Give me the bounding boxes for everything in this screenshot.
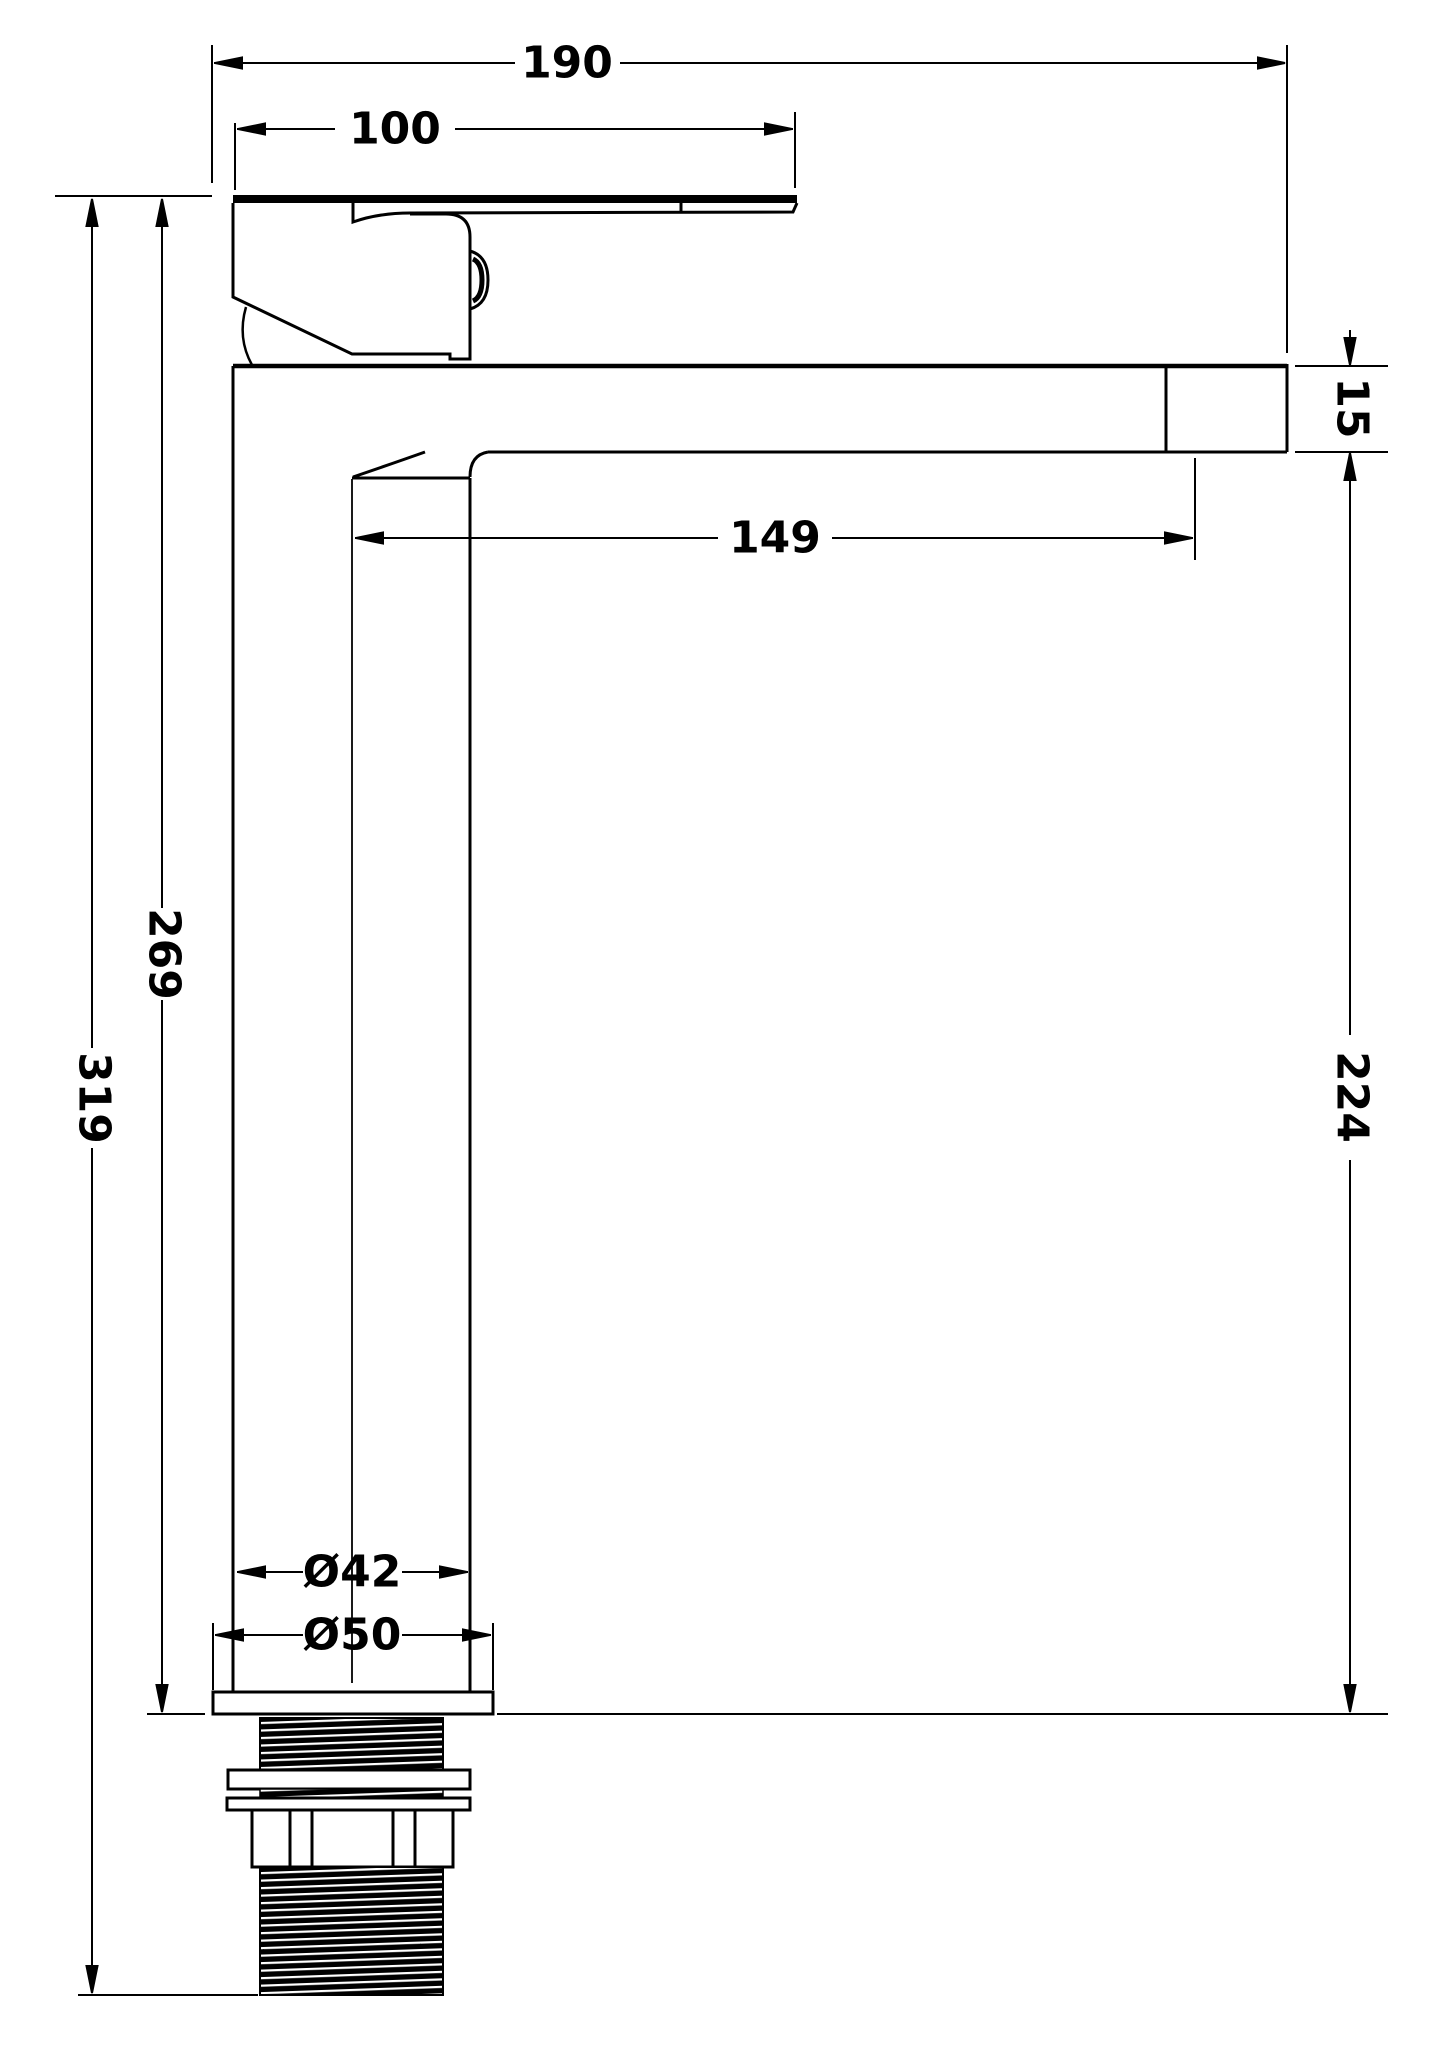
dim-149-arrow-right — [1165, 533, 1192, 544]
dim-42: Ø42 — [237, 1547, 468, 1598]
dim-319: 319 — [69, 199, 259, 1995]
dim-224-arrow-down — [1345, 1685, 1356, 1712]
faucet-outline — [213, 195, 1287, 1995]
dim-label-224: 224 — [1327, 1051, 1378, 1143]
threaded-shank-upper — [260, 1718, 443, 1770]
dim-190-arrow-left — [215, 58, 242, 69]
dim-319-arrow-up — [87, 199, 98, 226]
mixer-body — [233, 203, 488, 365]
dim-149-arrow-left — [356, 533, 383, 544]
dim-319-arrow-down — [87, 1966, 98, 1993]
dim-label-319: 319 — [69, 1052, 120, 1144]
dim-269: 269 — [55, 196, 212, 1714]
dim-label-100: 100 — [349, 104, 441, 155]
spout — [233, 364, 1287, 478]
dim-269-arrow-up — [157, 199, 168, 226]
dim-15-arrow-down — [1345, 338, 1356, 365]
column-top-arc — [243, 307, 252, 365]
dim-50-arrow-left — [216, 1630, 243, 1641]
dim-42-arrow-left — [238, 1567, 265, 1578]
dim-50: Ø50 — [213, 1610, 493, 1691]
lever-top-plate — [233, 195, 797, 203]
dim-15: 15 — [1295, 330, 1388, 452]
column — [233, 366, 470, 1692]
dim-149: 149 — [355, 458, 1195, 564]
dim-224: 224 — [497, 453, 1388, 1714]
metal-washer — [227, 1798, 470, 1810]
spout-fillet-far — [353, 452, 425, 477]
drawing-sheet: 190 100 149 15 — [0, 0, 1445, 2045]
dim-100-arrow-left — [238, 124, 265, 135]
cartridge-cap-inner — [473, 259, 482, 301]
dim-50-arrow-right — [463, 1630, 490, 1641]
rubber-washer — [228, 1770, 470, 1789]
base-plate — [213, 1692, 493, 1714]
dim-label-50: Ø50 — [303, 1610, 402, 1661]
dim-269-arrow-down — [157, 1685, 168, 1712]
dim-190-arrow-right — [1258, 58, 1285, 69]
faucet-technical-drawing: 190 100 149 15 — [0, 0, 1445, 2045]
threaded-shank-lower — [260, 1867, 443, 1995]
dim-label-15: 15 — [1327, 377, 1378, 438]
dim-label-149: 149 — [729, 513, 821, 564]
dim-label-269: 269 — [139, 908, 190, 1000]
dim-42-arrow-right — [440, 1567, 467, 1578]
body-outline — [233, 203, 470, 359]
dim-label-42: Ø42 — [303, 1547, 402, 1598]
lever-handle — [233, 195, 797, 222]
dim-100: 100 — [235, 104, 795, 191]
base-assembly — [213, 1692, 493, 1995]
dim-224-arrow-up — [1345, 453, 1356, 480]
spout-fillet-near — [470, 452, 488, 477]
backnut — [252, 1810, 453, 1867]
dim-100-arrow-right — [765, 124, 792, 135]
backnut-body — [252, 1810, 453, 1867]
dim-label-190: 190 — [521, 38, 613, 89]
